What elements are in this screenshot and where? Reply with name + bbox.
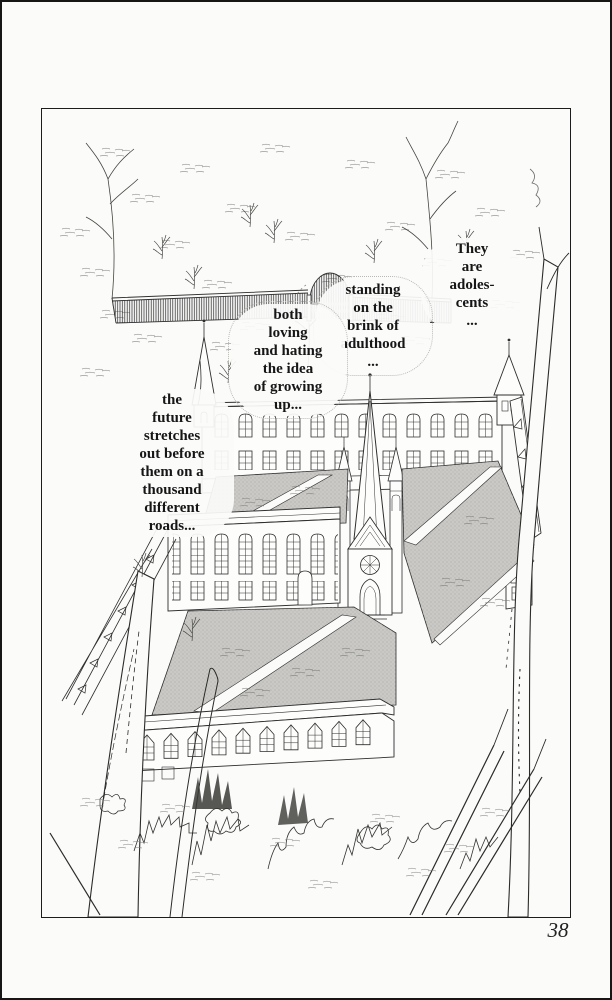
left-slope-fence [62,523,176,715]
narration-both-loving-hating: both loving and hating the idea of growi… [231,304,345,416]
courtyard-right [402,461,534,645]
narration-they-are-adolescents: They are adoles- cents ... [421,238,523,332]
bottom-foliage [80,769,510,888]
page-number: 38 [528,918,588,943]
manga-page: They are adoles- cents ... standing on t… [0,0,612,1000]
narration-future-stretches: the future stretches out before them on … [110,389,234,537]
courtyard-bottom [152,607,396,715]
